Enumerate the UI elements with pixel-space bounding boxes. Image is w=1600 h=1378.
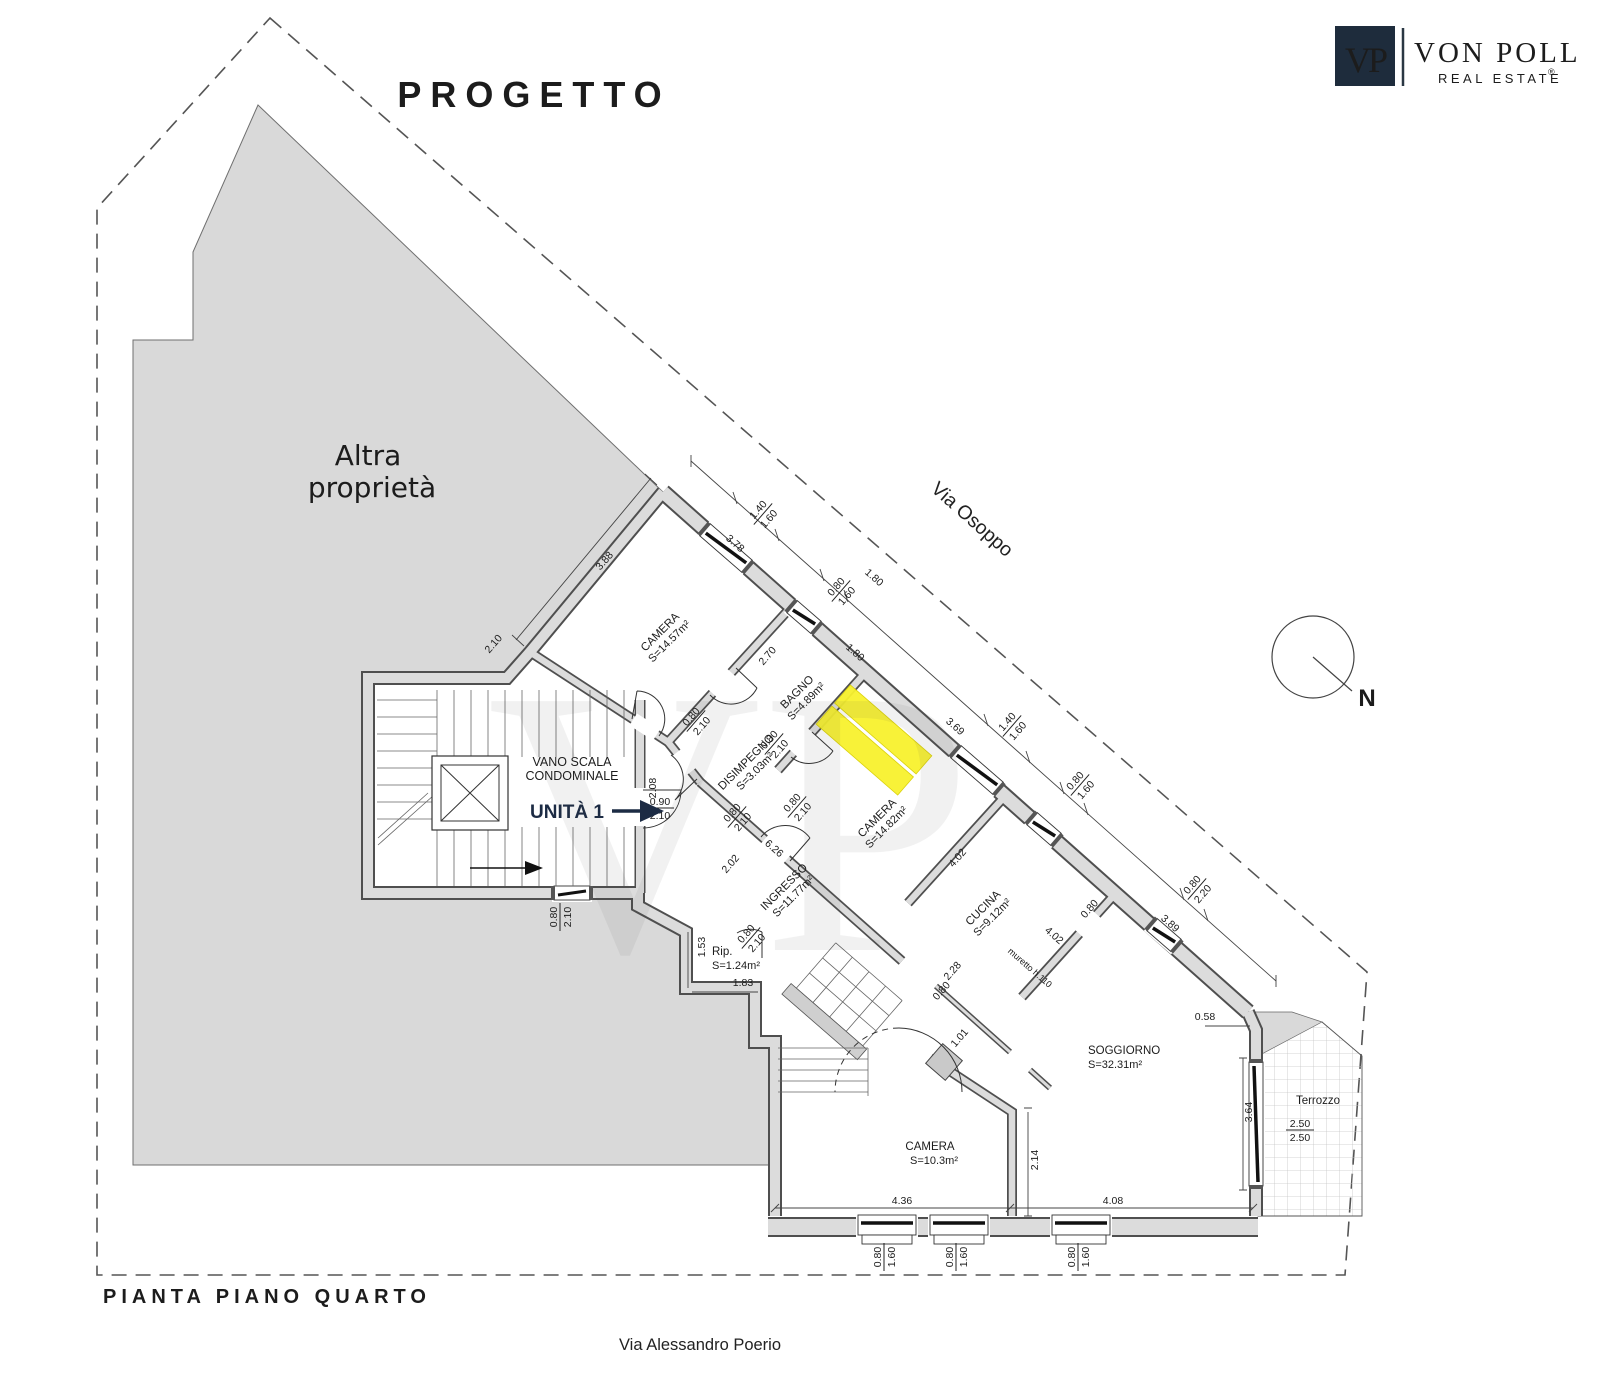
other-property-label-1: Altra	[335, 439, 402, 472]
room-label-terrazzo: Terrozzo	[1296, 1095, 1340, 1107]
street-label-osoppo: Via Osoppo	[927, 478, 1018, 562]
svg-text:0.80: 0.80	[872, 1247, 884, 1268]
window-icon	[856, 1213, 918, 1244]
svg-text:1.60: 1.60	[886, 1247, 898, 1268]
other-property-label-2: proprietà	[308, 471, 436, 504]
dim-label: 1.80	[862, 567, 885, 590]
dim-fraction: 1.401.60	[745, 496, 783, 534]
watermark: VP	[487, 612, 973, 1033]
svg-text:1.60: 1.60	[1080, 1247, 1092, 1268]
compass: N	[1272, 616, 1376, 712]
plan-caption: PIANTA PIANO QUARTO	[103, 1286, 431, 1308]
logo-registered-icon: ®	[1548, 67, 1555, 77]
dim-fraction: 0.801.60	[1062, 767, 1100, 805]
dim-fraction: 0.801.60	[1066, 1243, 1092, 1271]
window-icon	[696, 520, 756, 576]
logo-brand: VON POLL	[1414, 37, 1581, 69]
dim-label: 3.64	[1243, 1102, 1255, 1123]
svg-text:S=32.31m²: S=32.31m²	[1088, 1059, 1142, 1071]
svg-text:0.80: 0.80	[944, 1247, 956, 1268]
logo-tagline: REAL ESTATE	[1438, 71, 1562, 86]
svg-text:S=10.3m²: S=10.3m²	[910, 1155, 958, 1167]
window-icon	[1050, 1213, 1112, 1244]
dim-label: 4.36	[892, 1195, 913, 1207]
vonpoll-logo: VP VON POLL REAL ESTATE ®	[1335, 26, 1581, 86]
page-title: PROGETTO	[397, 74, 670, 115]
svg-text:CAMERA: CAMERA	[905, 1141, 955, 1153]
terrace-window-icon	[1247, 1059, 1265, 1189]
dim-fraction: 0.801.60	[823, 573, 861, 611]
floor-plan-svg: 3.88 3.78 2.70 1.80 1.80 3.69 4.02 4.02 …	[0, 0, 1600, 1378]
room-label-camera-3: CAMERAS=10.3m²	[905, 1141, 958, 1167]
floor-plan-page: 3.88 3.78 2.70 1.80 1.80 3.69 4.02 4.02 …	[0, 0, 1600, 1378]
svg-text:2.50: 2.50	[1290, 1118, 1311, 1130]
room-label-soggiorno: SOGGIORNOS=32.31m²	[1088, 1045, 1160, 1071]
bottom-windows	[856, 1213, 1112, 1244]
logo-monogram: VP	[1345, 40, 1387, 80]
dim-label: 4.02	[1042, 925, 1065, 948]
svg-text:2.50: 2.50	[1290, 1132, 1311, 1144]
dim-fraction: 0.802.20	[1179, 871, 1217, 909]
svg-text:0.80: 0.80	[1066, 1247, 1078, 1268]
compass-north-label: N	[1358, 685, 1375, 712]
dim-label: 2.14	[1029, 1150, 1041, 1171]
dim-label: 4.08	[1103, 1195, 1124, 1207]
compass-needle-icon	[1313, 657, 1352, 691]
svg-text:SOGGIORNO: SOGGIORNO	[1088, 1045, 1160, 1057]
dim-fraction: 0.801.60	[872, 1243, 898, 1271]
window-icon	[928, 1213, 990, 1244]
dim-fraction: 1.401.60	[994, 708, 1032, 746]
dim-label: 0.58	[1195, 1011, 1216, 1023]
svg-text:1.60: 1.60	[958, 1247, 970, 1268]
street-label-poerio: Via Alessandro Poerio	[619, 1336, 781, 1354]
dim-fraction: 0.801.60	[944, 1243, 970, 1271]
